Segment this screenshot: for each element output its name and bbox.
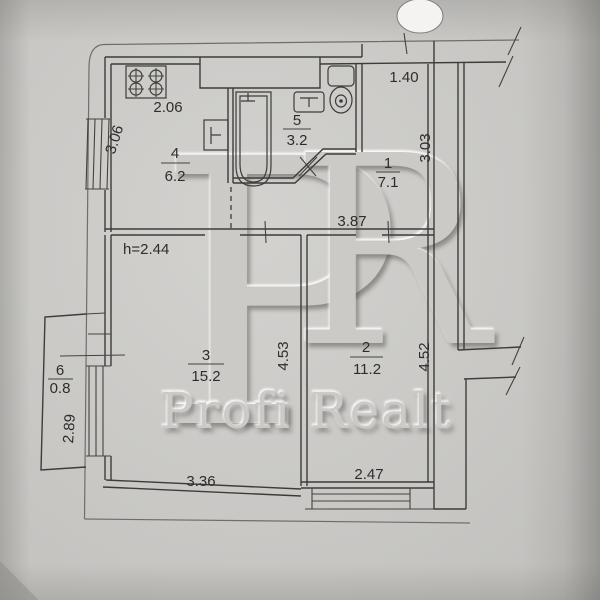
dim-room3-width: 3.36 [186,473,215,490]
neighbour-walls [434,62,524,509]
bathroom-door-mark [299,157,317,176]
dim-kitchen-depth: 3.06 [102,123,127,156]
svg-text:15.2: 15.2 [191,368,220,385]
svg-text:0.8: 0.8 [50,380,71,397]
floor-plan-drawing: 1 7.1 2 11.2 3 15.2 4 6.2 5 [0,0,600,600]
balcony-window [86,366,111,456]
svg-text:2: 2 [362,339,370,356]
svg-text:1: 1 [384,155,392,172]
dim-kitchen-width: 2.06 [153,99,182,116]
hole-punch [397,0,443,33]
dim-balcony-depth: 2.89 [60,414,79,444]
svg-text:6.2: 6.2 [165,168,186,185]
room-label-kitchen: 4 6.2 [161,145,190,185]
wall-break-marks-top [499,27,521,87]
scanned-floor-plan-photo: P R Profi Realt [0,0,600,600]
stove-icon [126,66,166,98]
toilet-icon [328,66,354,113]
washbasin-icon [294,92,324,112]
dim-hall-depth: 3.03 [417,133,434,162]
dim-room2-width: 2.47 [354,466,383,483]
room-label-room2: 2 11.2 [350,339,383,378]
walls [60,33,506,509]
svg-text:3: 3 [202,347,210,364]
room-label-hall: 1 7.1 [376,155,400,191]
svg-text:6: 6 [56,362,64,379]
dim-room3-depth: 4.53 [275,341,292,370]
svg-text:4: 4 [171,145,179,162]
room-label-bathroom: 5 3.2 [283,112,311,149]
room-label-room3: 3 15.2 [188,347,224,385]
dim-hall-width: 3.87 [337,213,366,230]
svg-text:11.2: 11.2 [353,361,381,378]
dim-room2-depth: 4.52 [416,342,433,371]
room-label-balcony: 6 0.8 [48,362,73,397]
kitchen-sink-icon [204,120,228,150]
room2-window [305,488,434,509]
ceiling-height-label: h=2.44 [123,241,169,258]
svg-text:3.2: 3.2 [287,132,308,149]
svg-text:7.1: 7.1 [378,174,399,191]
dim-wc-width: 1.40 [389,69,418,86]
svg-text:5: 5 [293,112,301,129]
bathtub-icon [236,92,271,186]
